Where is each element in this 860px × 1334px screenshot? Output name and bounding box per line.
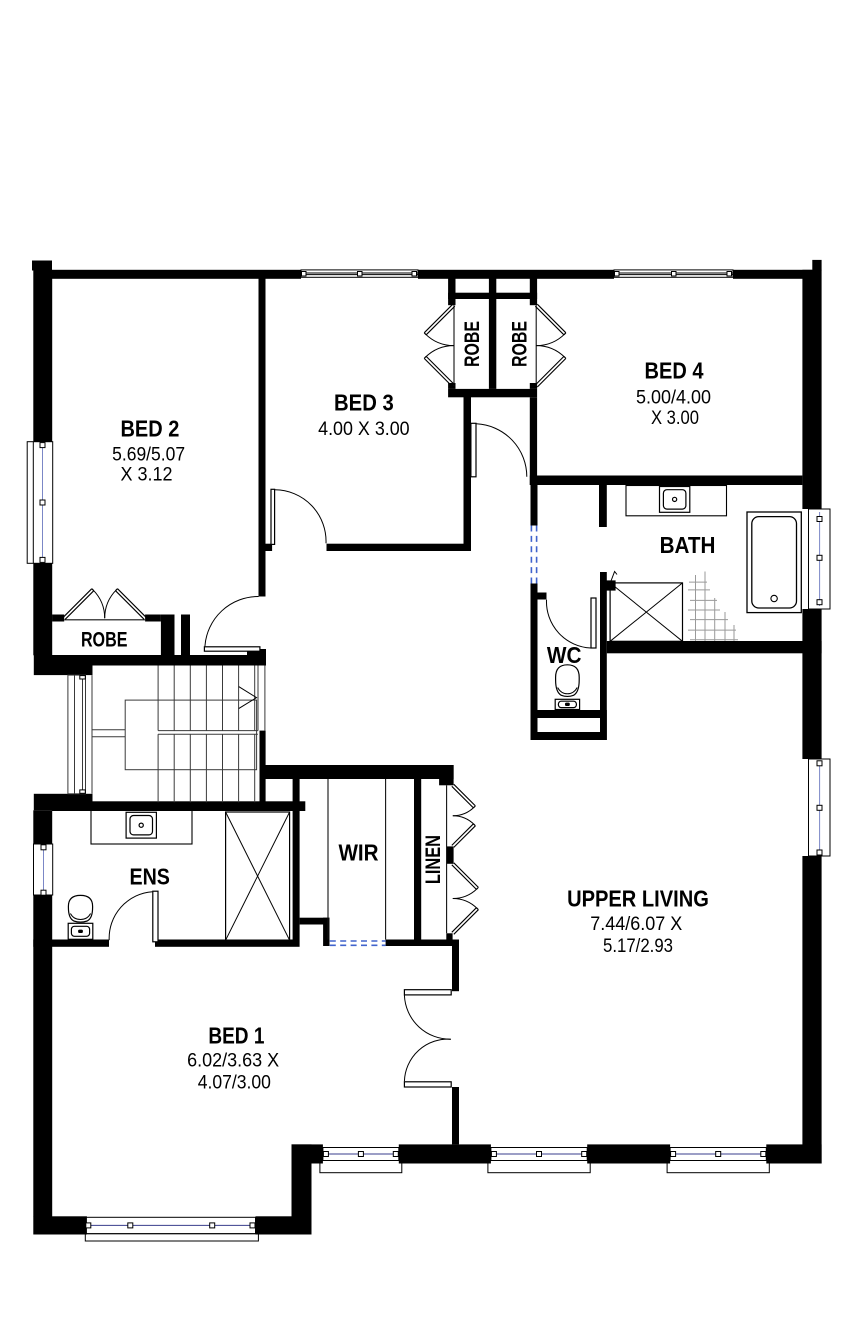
- svg-text:X 3.12: X 3.12: [121, 464, 173, 486]
- svg-text:BED 2: BED 2: [121, 416, 180, 442]
- svg-text:X 3.00: X 3.00: [651, 407, 699, 429]
- svg-text:5.00/4.00: 5.00/4.00: [636, 386, 711, 408]
- svg-text:4.07/3.00: 4.07/3.00: [198, 1071, 271, 1093]
- svg-text:BED 3: BED 3: [334, 390, 394, 416]
- svg-text:LINEN: LINEN: [422, 835, 445, 884]
- svg-text:BATH: BATH: [660, 532, 716, 558]
- svg-text:UPPER LIVING: UPPER LIVING: [567, 886, 709, 912]
- svg-text:BED 1: BED 1: [208, 1023, 264, 1049]
- svg-text:ROBE: ROBE: [508, 321, 531, 367]
- svg-text:6.02/3.63 X: 6.02/3.63 X: [187, 1049, 279, 1071]
- svg-text:4.00 X 3.00: 4.00 X 3.00: [318, 418, 410, 440]
- svg-text:WC: WC: [547, 642, 582, 668]
- svg-text:ROBE: ROBE: [461, 321, 484, 367]
- svg-text:5.69/5.07: 5.69/5.07: [112, 443, 185, 465]
- svg-text:WIR: WIR: [338, 839, 378, 865]
- svg-text:BED 4: BED 4: [645, 357, 704, 383]
- svg-text:ENS: ENS: [130, 864, 170, 890]
- svg-text:ROBE: ROBE: [81, 628, 128, 651]
- svg-text:7.44/6.07 X: 7.44/6.07 X: [590, 913, 682, 935]
- svg-text:5.17/2.93: 5.17/2.93: [603, 935, 673, 957]
